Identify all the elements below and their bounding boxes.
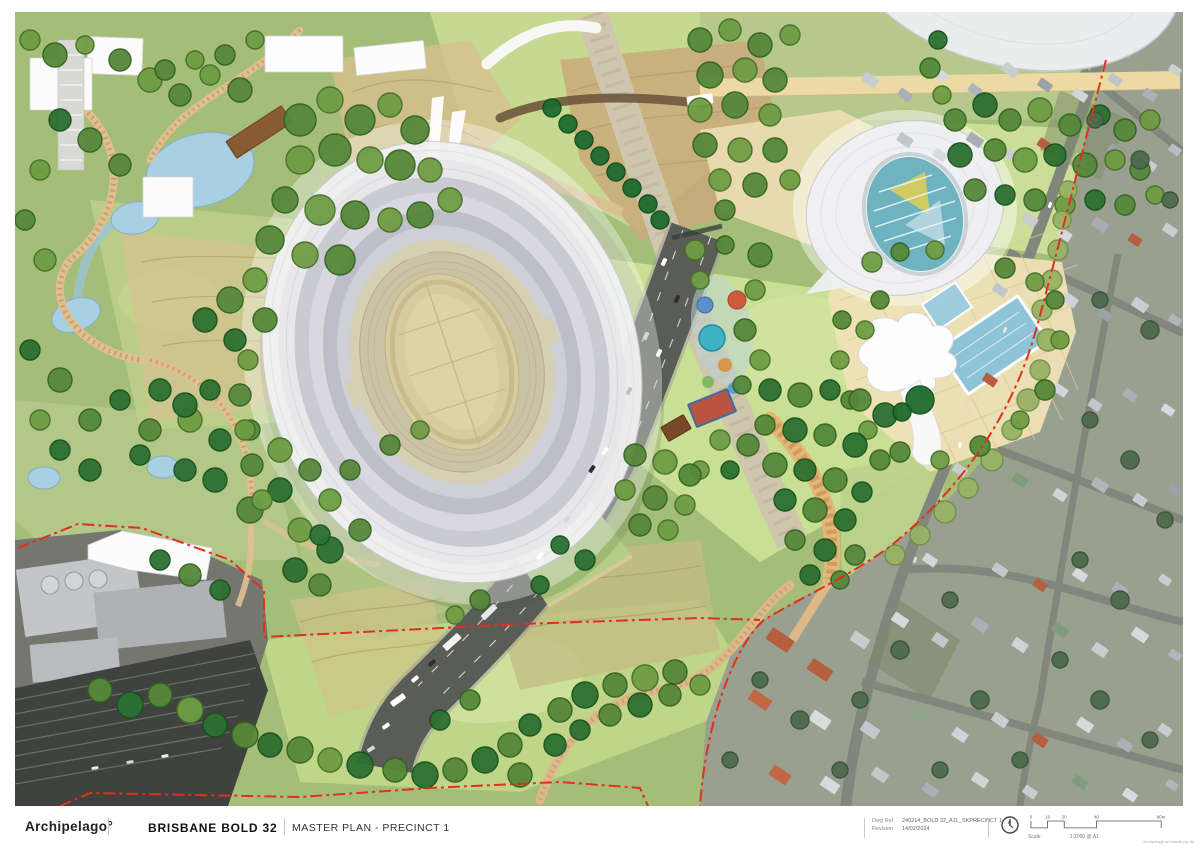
sheet-title: MASTER PLAN - PRECINCT 1: [292, 822, 450, 834]
revision-label: Revision: [872, 825, 902, 833]
drawing-sheet: Archipelago° BRISBANE BOLD 32 MASTER PLA…: [0, 0, 1200, 848]
divider: [284, 818, 285, 835]
title-block: Archipelago° BRISBANE BOLD 32 MASTER PLA…: [0, 806, 1200, 848]
sheet-margin-left: [0, 0, 15, 806]
scale-value: 1:2000 @ A1: [1070, 834, 1099, 840]
dwg-ref-value: 240214_BOLD 32_A1L_SKPRECINCT 1: [902, 818, 1002, 824]
north-arrow-icon: [1000, 815, 1020, 840]
sheet-margin-right: [1183, 0, 1200, 806]
dwg-ref-label: Dwg Ref: [872, 817, 902, 825]
sheet-margin-top: [0, 0, 1200, 12]
svg-text:10: 10: [1045, 815, 1050, 820]
master-plan-drawing: [0, 0, 1200, 848]
divider: [108, 818, 109, 835]
svg-text:40: 40: [1094, 815, 1099, 820]
scale-label: Scale: [1028, 834, 1041, 840]
divider: [864, 818, 865, 838]
revision-value: 14/02/2024: [902, 826, 930, 832]
divider: [988, 818, 989, 838]
project-title: BRISBANE BOLD 32: [148, 821, 277, 835]
svg-text:0: 0: [1030, 815, 1033, 820]
archipelago-logo: Archipelago°: [25, 819, 113, 834]
drawing-info: Dwg Ref240214_BOLD 32_A1L_SKPRECINCT 1 R…: [872, 817, 1002, 833]
svg-text:80m: 80m: [1157, 815, 1166, 820]
svg-text:20: 20: [1062, 815, 1067, 820]
credit-note: archipelago architects pty ltd: [1118, 839, 1194, 844]
